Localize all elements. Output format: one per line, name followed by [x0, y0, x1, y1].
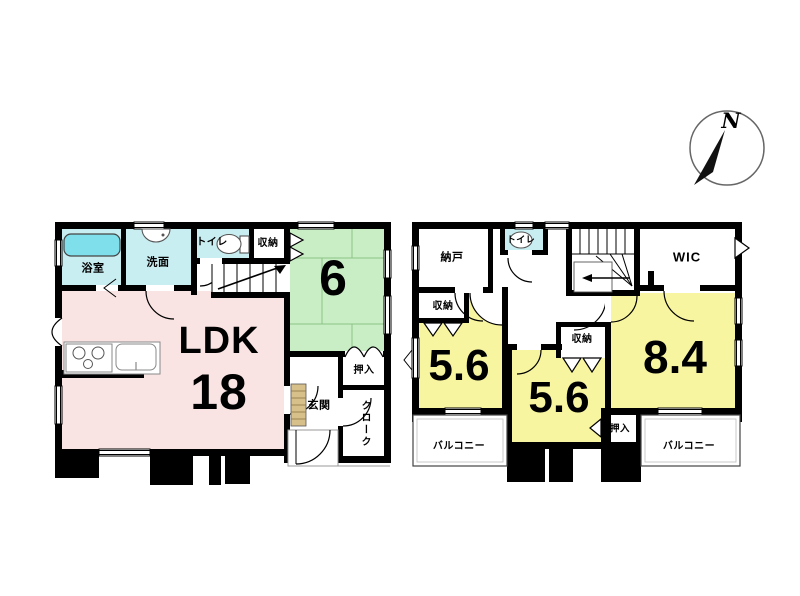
room-center-size-label: 5.6 — [528, 376, 589, 420]
ldk-size-label: 18 — [190, 367, 248, 417]
oshiire2-label: 押入 — [610, 424, 630, 434]
toilet2-label: トイレ — [507, 236, 536, 245]
genkan-label: 玄関 — [308, 401, 331, 412]
toilet2-door-arc — [508, 258, 532, 282]
bathroom-label: 浴室 — [82, 264, 105, 275]
balcony-left-label: バルコニー — [433, 442, 485, 452]
compass: N — [690, 108, 764, 185]
room-right-size-label: 8.4 — [643, 334, 707, 380]
bathtub-icon — [64, 234, 120, 256]
floorplan-drawing: N — [0, 0, 800, 596]
shoe-cabinet — [291, 384, 306, 426]
tatami-size-label: 6 — [319, 253, 347, 303]
nando-label: 納戸 — [441, 253, 464, 264]
cloak-label: クローク — [359, 400, 369, 448]
pillar — [507, 449, 545, 482]
pillar — [225, 449, 250, 484]
oshiire1-label: 押入 — [354, 366, 375, 376]
washroom-label: 洗面 — [147, 258, 170, 269]
pillar — [150, 449, 193, 485]
storage2-center-label: 収納 — [572, 335, 593, 345]
toilet1-label: トイレ — [196, 238, 228, 248]
compass-north-label: N — [720, 108, 741, 133]
floorplan-canvas: N 浴室 洗面 トイレ 収納 6 LDK 18 押入 玄関 クローク 納戸 トイ… — [0, 0, 800, 596]
room-left-size-label: 5.6 — [428, 344, 489, 388]
ldk-label: LDK — [178, 322, 259, 360]
stairs-1f — [212, 264, 290, 292]
pillar — [209, 452, 221, 485]
stairs-2f — [572, 229, 634, 292]
wic-label: WIC — [673, 251, 701, 264]
pillar — [601, 447, 641, 482]
kitchen-counter — [64, 342, 160, 374]
balcony-right-label: バルコニー — [663, 442, 715, 452]
storage2-left-label: 収納 — [433, 302, 454, 312]
pillar — [55, 449, 99, 478]
pillar — [549, 449, 573, 482]
storage1-label: 収納 — [258, 239, 279, 249]
